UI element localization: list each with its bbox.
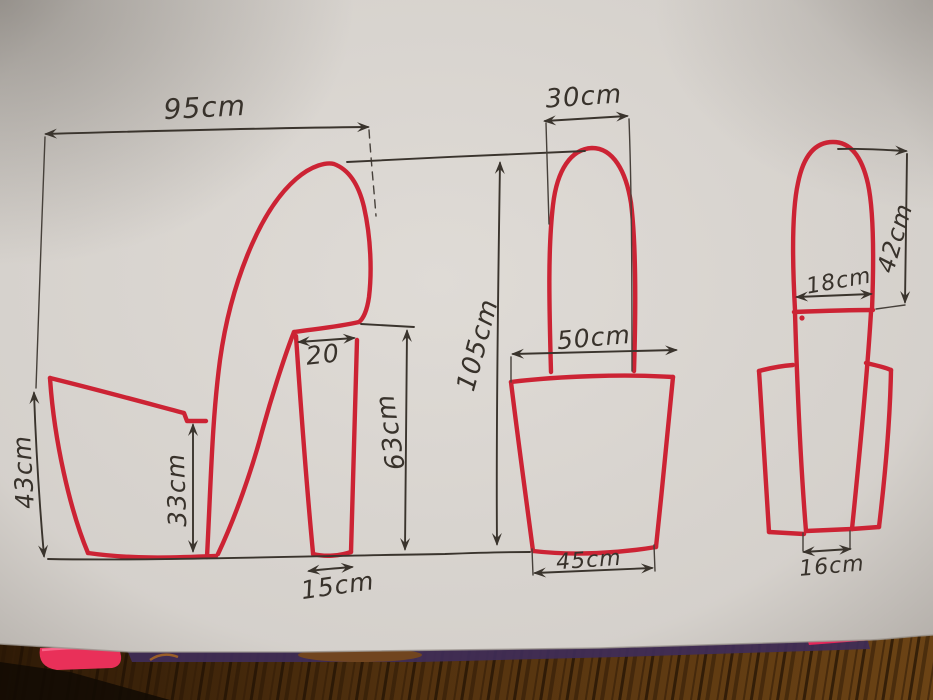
left-panel-bottom [769,532,804,534]
tick-45cm-left [532,549,533,575]
right-panel-bottom [852,527,879,529]
back-arch-base-line [794,310,873,312]
dim-label-heel-top-width: 20 [305,338,342,370]
dim-label-side-front-height: 43cm [7,434,40,509]
back-column-bottom [806,529,852,531]
photo-of-hand-drawn-shoe-pattern: 95cm 43cm 33cm 20 63cm 15cm 30cm 105cm 5… [0,0,933,700]
red-dot [799,315,804,320]
dim-label-front-top-width: 30cm [545,79,624,114]
dim-label-side-overall-width: 95cm [163,89,247,126]
sketch-canvas: 95cm 43cm 33cm 20 63cm 15cm 30cm 105cm 5… [0,0,933,700]
dim-label-side-mid-height: 33cm [161,453,193,528]
dim-label-front-body-base-width: 45cm [555,546,622,576]
tick-45cm-right [654,545,655,571]
